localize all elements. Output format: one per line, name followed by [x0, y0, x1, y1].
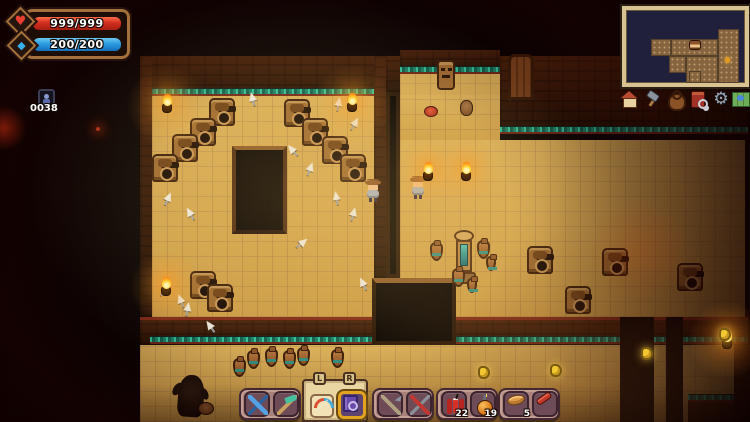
hotbar-slot-spell-tome-selected[interactable]: [338, 391, 366, 419]
totem-statue: [437, 60, 455, 90]
shrine-statue: [340, 154, 366, 182]
shrine-statue: [527, 246, 553, 274]
arrow-pickup: [334, 96, 343, 106]
crossbow-item-icon: [248, 395, 268, 415]
shears-item-icon: [410, 395, 430, 415]
wall-trim: [500, 126, 562, 134]
hotbar-group-food: 5: [498, 388, 560, 420]
wall-divider: [374, 56, 386, 278]
shrine-statue: [152, 154, 178, 182]
pot: [467, 278, 477, 293]
heart-icon: ♥: [12, 13, 29, 30]
arrow-pickup: [331, 190, 340, 200]
companion-legs: [414, 195, 417, 199]
wall-trim: [140, 88, 386, 96]
hotbar-slot-shears[interactable]: [406, 391, 432, 417]
ember-glow: [96, 127, 100, 131]
hotbar-group-ranged: [239, 388, 301, 420]
minimap-player-icon: [689, 40, 701, 50]
bread-count: 5: [524, 409, 530, 419]
jerky-item-icon: [535, 391, 552, 406]
red-beetle-enemy: [424, 106, 438, 117]
pit-junction: [372, 278, 456, 345]
shrine-statue: [207, 284, 233, 312]
wall-left-edge: [140, 56, 152, 317]
journal-icon[interactable]: [689, 90, 707, 108]
brown-beetle-enemy: [460, 100, 473, 116]
pillar-dark: [666, 317, 683, 422]
minimap-room: [669, 56, 686, 73]
bread-item-icon: [506, 393, 526, 407]
hookshot-item-icon: [381, 395, 401, 415]
home-icon[interactable]: [620, 90, 638, 108]
hotbar-slot-bomb[interactable]: 19: [470, 391, 496, 417]
bomb-count: 19: [484, 409, 497, 419]
dynamite-count: 22: [455, 409, 468, 419]
player-character: [365, 178, 381, 202]
status-bars-panel: 999/999 200/200: [24, 9, 130, 59]
hotbar-slot-hookshot[interactable]: [377, 391, 403, 417]
inventory-bag-icon[interactable]: [666, 90, 684, 108]
world-map-icon[interactable]: [731, 90, 749, 108]
scythe-item-icon: [277, 395, 297, 415]
wall-trim: [562, 126, 748, 134]
player-counter-value: 0038: [30, 103, 58, 114]
hotbar-slot-bow[interactable]: [310, 394, 334, 418]
craft-hammer-icon[interactable]: [644, 90, 662, 108]
hotbar-group-tools: [372, 388, 434, 420]
mana-bar: 200/200: [31, 36, 123, 53]
left-bumper-key[interactable]: L: [313, 372, 326, 385]
companion-body: [412, 187, 424, 195]
player-legs: [369, 198, 372, 202]
wall-corridor-top: [386, 56, 400, 92]
scarab-enemy: [198, 402, 214, 415]
hotbar-slot-jerky[interactable]: [532, 391, 558, 417]
shrine-statue: [565, 286, 591, 314]
companion-character: [410, 175, 426, 199]
shrine-statue: [677, 263, 703, 291]
spell-tome-item-icon: [343, 395, 358, 412]
hotbar-slot-scythe[interactable]: [273, 391, 299, 417]
hotbar-equipped-panel: L R: [302, 379, 368, 422]
minimap-item-marker: [725, 57, 730, 63]
floor-right-room: [400, 95, 500, 145]
game-screen: 999/999 200/200 ♥ ◆ 0038 ⚙ L R: [0, 0, 750, 422]
fountain-window: [460, 244, 468, 266]
hotbar-slot-bread[interactable]: 5: [503, 391, 529, 417]
door: [508, 54, 534, 100]
hotbar-group-explosives: 22 19: [436, 388, 498, 420]
minimap-room: [689, 71, 701, 83]
minimap-room: [651, 39, 671, 56]
shrine-statue: [602, 248, 628, 276]
wall-right-edge: [734, 345, 750, 422]
pit: [232, 146, 287, 234]
player-body: [367, 190, 379, 198]
arrow-pickup: [183, 301, 192, 311]
hotbar-slot-dynamite[interactable]: 22: [441, 391, 467, 417]
hotbar-slot-crossbow[interactable]: [244, 391, 270, 417]
minimap-room: [718, 29, 739, 83]
health-bar: 999/999: [31, 15, 123, 32]
pot: [486, 256, 496, 271]
pillar-dark: [620, 317, 654, 422]
bow-item-icon: [312, 396, 332, 416]
settings-gear-icon[interactable]: ⚙: [712, 90, 730, 108]
right-bumper-key[interactable]: R: [343, 372, 356, 385]
pit-corridor: [386, 92, 400, 278]
minimap[interactable]: [622, 6, 749, 87]
mana-diamond-icon: ◆: [13, 37, 30, 54]
